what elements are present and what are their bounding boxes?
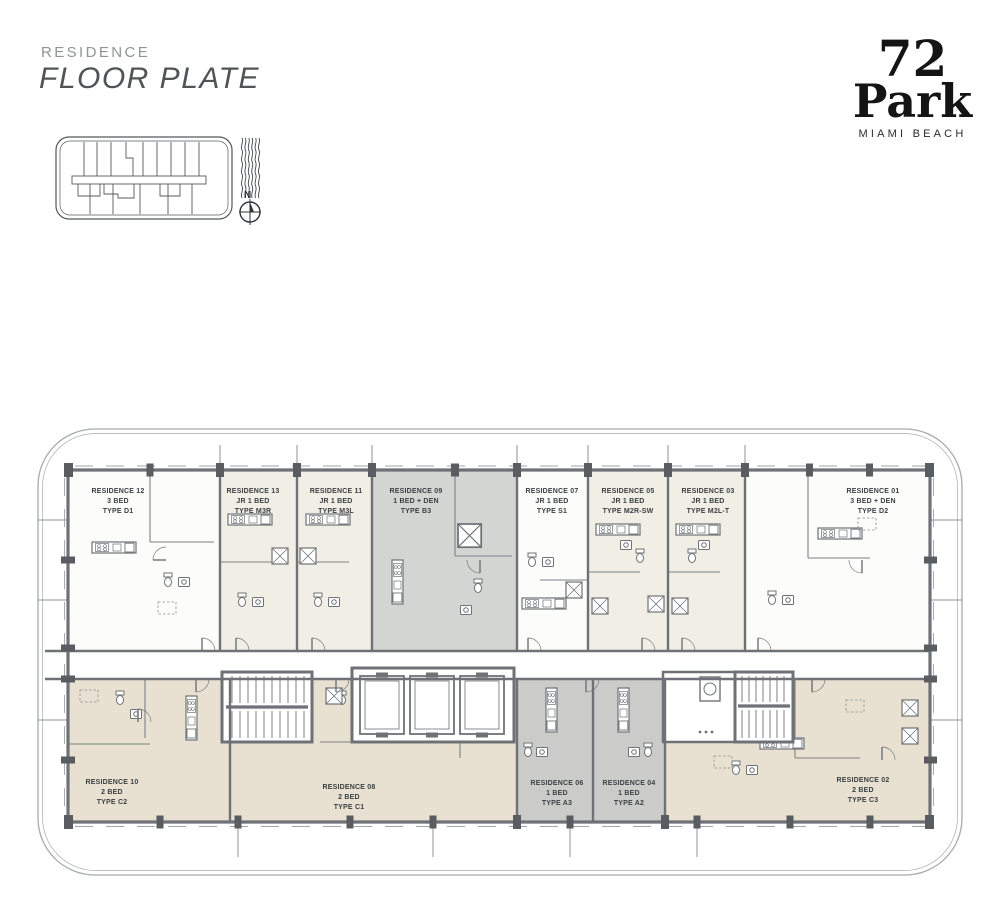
unit-label-residence-05: RESIDENCE 05JR 1 BEDTYPE M2R-SW <box>602 487 655 516</box>
unit-label-residence-08: RESIDENCE 082 BEDTYPE C1 <box>323 783 376 812</box>
trash-room <box>663 672 735 742</box>
eyebrow-residence: RESIDENCE <box>41 44 150 61</box>
stair-core-east <box>735 672 793 742</box>
shoreline-icon <box>241 138 259 198</box>
stair-core-west <box>222 672 312 742</box>
unit-label-residence-02: RESIDENCE 022 BEDTYPE C3 <box>837 776 890 805</box>
brand-logo: 72 Park MIAMI BEACH <box>840 36 985 140</box>
unit-label-residence-09: RESIDENCE 091 BED + DENTYPE B3 <box>390 487 443 516</box>
key-plan <box>56 137 232 219</box>
unit-label-residence-10: RESIDENCE 102 BEDTYPE C2 <box>86 778 139 807</box>
north-arrow-icon <box>239 199 261 225</box>
north-label: N <box>244 190 251 201</box>
page-title: FLOOR PLATE <box>39 62 260 96</box>
floor-plate-page: RESIDENCE FLOOR PLATE 72 Park MIAMI BEAC… <box>0 0 1000 911</box>
unit-label-residence-13: RESIDENCE 13JR 1 BEDTYPE M3R <box>227 487 280 516</box>
logo-subtitle: MIAMI BEACH <box>840 128 985 140</box>
unit-label-residence-11: RESIDENCE 11JR 1 BEDTYPE M3L <box>310 487 363 516</box>
unit-label-residence-06: RESIDENCE 061 BEDTYPE A3 <box>531 779 584 808</box>
unit-label-residence-03: RESIDENCE 03JR 1 BEDTYPE M2L-T <box>682 487 735 516</box>
unit-label-residence-01: RESIDENCE 013 BED + DENTYPE D2 <box>847 487 900 516</box>
logo-name: Park <box>840 78 985 124</box>
unit-label-residence-07: RESIDENCE 07JR 1 BEDTYPE S1 <box>526 487 579 516</box>
unit-label-residence-12: RESIDENCE 123 BEDTYPE D1 <box>92 487 145 516</box>
unit-fills <box>68 470 930 822</box>
unit-label-residence-04: RESIDENCE 041 BEDTYPE A2 <box>603 779 656 808</box>
